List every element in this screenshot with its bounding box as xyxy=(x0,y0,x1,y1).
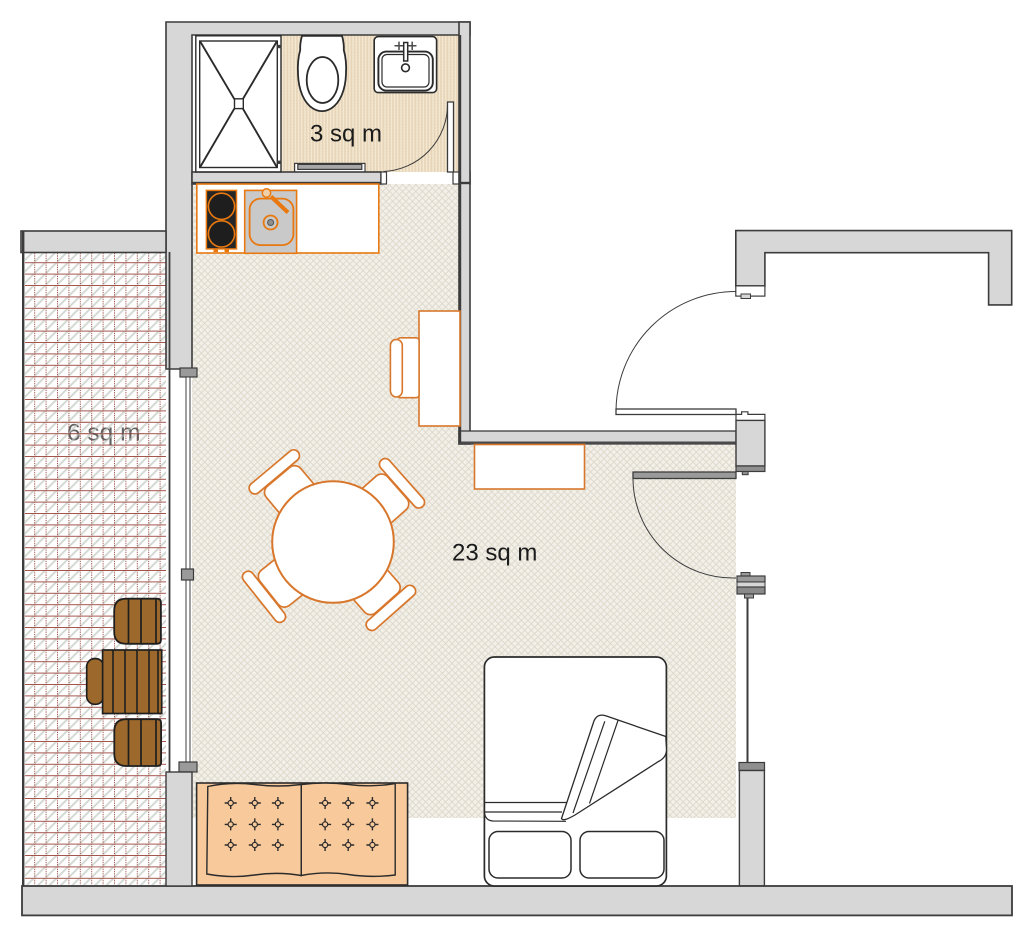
svg-text:3 sq m: 3 sq m xyxy=(310,120,382,147)
svg-text:23 sq m: 23 sq m xyxy=(452,540,537,567)
